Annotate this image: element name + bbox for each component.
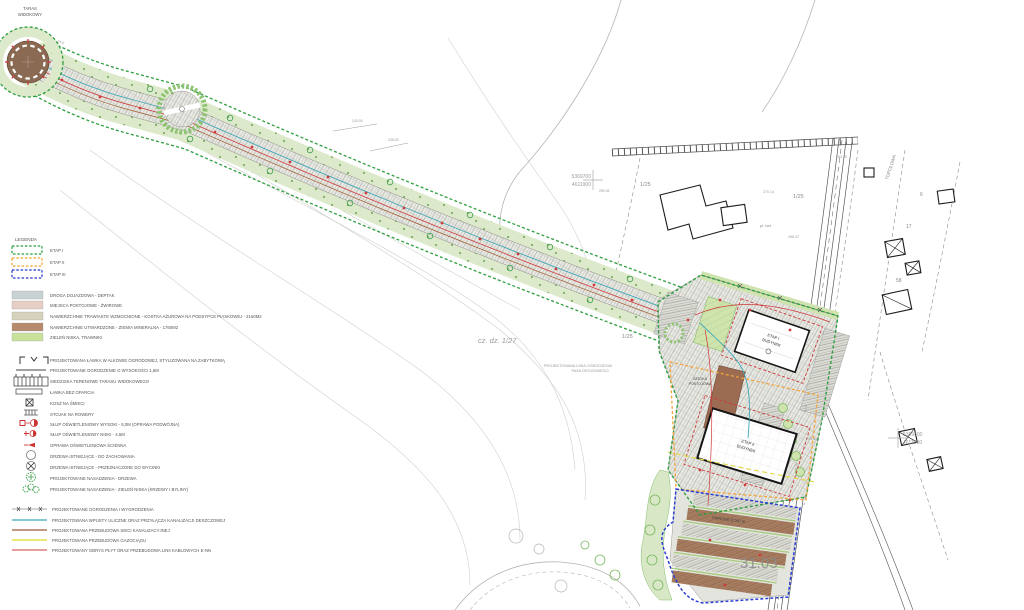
svg-text:DRZEWA ISTNIEJĄCE - DO ZACHOWA: DRZEWA ISTNIEJĄCE - DO ZACHOWANIA bbox=[50, 454, 135, 459]
svg-text:WIDOKOWY: WIDOKOWY bbox=[18, 12, 42, 17]
svg-text:238,50: 238,50 bbox=[388, 138, 399, 142]
shrubs-new-icon bbox=[23, 484, 39, 493]
street-label: TOPOLOWA bbox=[884, 154, 897, 180]
site-plan-page: ETAP I BUDYNEK ETAP II BUDYNEK bbox=[0, 0, 1024, 610]
surface-swatch bbox=[12, 312, 43, 320]
stage2-swatch bbox=[12, 258, 42, 266]
svg-text:DRZEWA ISTNIEJĄCE - PRZEZNACZO: DRZEWA ISTNIEJĄCE - PRZEZNACZONE DO WYCI… bbox=[50, 465, 160, 470]
svg-text:SIEDZISKA TERENOWE TARASU WIDO: SIEDZISKA TERENOWE TARASU WIDOKOWEGO bbox=[50, 379, 150, 384]
fence-note: PROJEKTOWANA LINIA OGRODZENIA bbox=[544, 364, 613, 368]
development-area: ETAP I BUDYNEK ETAP II BUDYNEK bbox=[641, 275, 850, 603]
svg-text:PROJEKTOWANE NASADZENIA - DRZE: PROJEKTOWANE NASADZENIA - DRZEWA bbox=[50, 476, 137, 481]
svg-text:270.14: 270.14 bbox=[763, 190, 774, 194]
site-plan-canvas: ETAP I BUDYNEK ETAP II BUDYNEK bbox=[0, 0, 1024, 610]
svg-text:pł. bet.: pł. bet. bbox=[760, 223, 772, 228]
svg-text:ETAP I: ETAP I bbox=[50, 248, 63, 253]
svg-text:268.47: 268.47 bbox=[788, 235, 799, 239]
svg-text:PROJEKTOWANA WPUSTY ULICZNE OR: PROJEKTOWANA WPUSTY ULICZNE ORAZ PRZYŁĄC… bbox=[52, 518, 225, 523]
surface-swatch bbox=[12, 323, 43, 331]
lamp-high-icon bbox=[20, 419, 38, 427]
stage3-swatch bbox=[12, 270, 42, 278]
svg-text:4611900: 4611900 bbox=[903, 440, 922, 446]
svg-text:ETAP II: ETAP II bbox=[50, 260, 64, 265]
svg-text:1/25: 1/25 bbox=[622, 334, 633, 340]
bike-rack-icon bbox=[24, 410, 38, 415]
svg-text:NAWIERZCHNIE TRAWIASTE WZMOCNI: NAWIERZCHNIE TRAWIASTE WZMOCNIONE - KOST… bbox=[50, 314, 262, 319]
contour-annotations: 240,00 238,50 bbox=[333, 119, 408, 151]
lamp-low-icon bbox=[24, 430, 36, 437]
bay-label: ZATOKA bbox=[693, 377, 708, 381]
svg-text:17: 17 bbox=[906, 224, 912, 230]
ponds bbox=[509, 529, 567, 592]
svg-text:PROJEKTOWANE OGRODZENIA I WYGR: PROJEKTOWANE OGRODZENIA I WYGRODZENIA bbox=[52, 507, 154, 512]
svg-text:249.50: 249.50 bbox=[806, 437, 817, 441]
bench-alcove-icon bbox=[20, 357, 48, 364]
svg-text:NAWIERZCHNIE UTWARDZONE - ZIEM: NAWIERZCHNIE UTWARDZONE - ZIEMIA MINERAL… bbox=[50, 325, 179, 330]
stage1-swatch bbox=[12, 246, 42, 254]
svg-text:MIEJSCA POSTOJOWE - ŻWIROWE: MIEJSCA POSTOJOWE - ŻWIROWE bbox=[50, 303, 122, 308]
svg-text:SŁUP OŚWIETLENIOWY NISKI - 4,5: SŁUP OŚWIETLENIOWY NISKI - 4,5M bbox=[50, 432, 125, 437]
coordinate-cross-1: 5369700 4611900 259.05 bbox=[572, 170, 610, 193]
svg-text:259.05: 259.05 bbox=[599, 189, 609, 193]
tree-removal-icon bbox=[27, 462, 36, 471]
surface-swatch bbox=[12, 301, 43, 309]
svg-text:PROJEKTOWANE NASADZENIA - ZIEL: PROJEKTOWANE NASADZENIA - ZIELEŃ NISKA (… bbox=[50, 487, 189, 492]
svg-text:6: 6 bbox=[920, 192, 923, 198]
svg-text:POSTOJOWA: POSTOJOWA bbox=[689, 382, 712, 386]
legend-title: LEGENDA bbox=[15, 237, 38, 242]
svg-text:PROJEKTOWANA PRZEBUDOWA GAZOCI: PROJEKTOWANA PRZEBUDOWA GAZOCIĄGU bbox=[52, 538, 146, 543]
surface-swatch bbox=[12, 333, 43, 341]
date-mark: 31.03 bbox=[740, 555, 778, 572]
svg-text:240,00: 240,00 bbox=[352, 119, 363, 123]
svg-text:PROJEKTOWANY OBRYS PŁYT ORAZ P: PROJEKTOWANY OBRYS PŁYT ORAZ PRZEBUDOWA … bbox=[52, 548, 211, 553]
svg-text:PROJEKTOWANE OGRODZENIE O WYSO: PROJEKTOWANE OGRODZENIE O WYSOKOŚCI 1,5M bbox=[50, 368, 159, 373]
svg-text:1/25: 1/25 bbox=[793, 194, 804, 200]
terrain-seats-icon bbox=[14, 374, 48, 386]
svg-text:KOSZ NA ŚMIECI: KOSZ NA ŚMIECI bbox=[50, 401, 85, 406]
bench-icon bbox=[16, 389, 42, 394]
svg-text:5369700: 5369700 bbox=[572, 174, 592, 180]
surface-swatch bbox=[12, 291, 43, 299]
svg-text:5369500: 5369500 bbox=[903, 432, 923, 438]
fence-line-legend bbox=[12, 507, 47, 511]
svg-text:STOJAK NA ROWERY: STOJAK NA ROWERY bbox=[50, 412, 94, 417]
svg-text:PROJEKTOWANA PRZEBUDOWA SIECI: PROJEKTOWANA PRZEBUDOWA SIECI KANALIZACY… bbox=[52, 528, 170, 533]
svg-text:ETAP III: ETAP III bbox=[50, 272, 66, 277]
svg-text:263.25: 263.25 bbox=[836, 155, 847, 159]
parcel-label-main: cz. dz. 1/27 bbox=[478, 336, 517, 345]
terrace-label: TARAS bbox=[23, 6, 37, 11]
legend: LEGENDA ETAP I ETAP II ETAP III DROGA DO… bbox=[12, 237, 262, 553]
existing-trees-bottom bbox=[581, 541, 620, 580]
svg-text:SŁUP OŚWIETLENIOWY WYSOKI - 8,: SŁUP OŚWIETLENIOWY WYSOKI - 8,0M (OPRAWA… bbox=[50, 422, 180, 427]
svg-text:ŁAWKA BEZ OPARCIA: ŁAWKA BEZ OPARCIA bbox=[50, 390, 95, 395]
tree-existing-icon bbox=[27, 451, 36, 460]
svg-text:OPRAWA OŚWIETLENIOWA ŚCIENNA: OPRAWA OŚWIETLENIOWA ŚCIENNA bbox=[50, 443, 127, 448]
wall-lamp-icon bbox=[24, 443, 35, 447]
svg-text:ZIELEŃ NISKA, TRAWNIKI: ZIELEŃ NISKA, TRAWNIKI bbox=[50, 335, 102, 340]
svg-text:58: 58 bbox=[896, 278, 902, 284]
svg-text:PASA DROGOWEGO: PASA DROGOWEGO bbox=[571, 369, 608, 373]
trash-bin-icon bbox=[26, 399, 33, 406]
svg-text:4611900: 4611900 bbox=[572, 182, 591, 188]
svg-text:1/25: 1/25 bbox=[640, 182, 651, 188]
svg-text:DROGA DOJAZDOWA - DEPTAK: DROGA DOJAZDOWA - DEPTAK bbox=[50, 293, 115, 298]
svg-text:PROJEKTOWANA ŁAWKA W ALKOWIE O: PROJEKTOWANA ŁAWKA W ALKOWIE OGRODOWEJ, … bbox=[50, 358, 225, 363]
tree-new-icon bbox=[27, 473, 36, 482]
retaining-wall-band bbox=[612, 137, 858, 156]
